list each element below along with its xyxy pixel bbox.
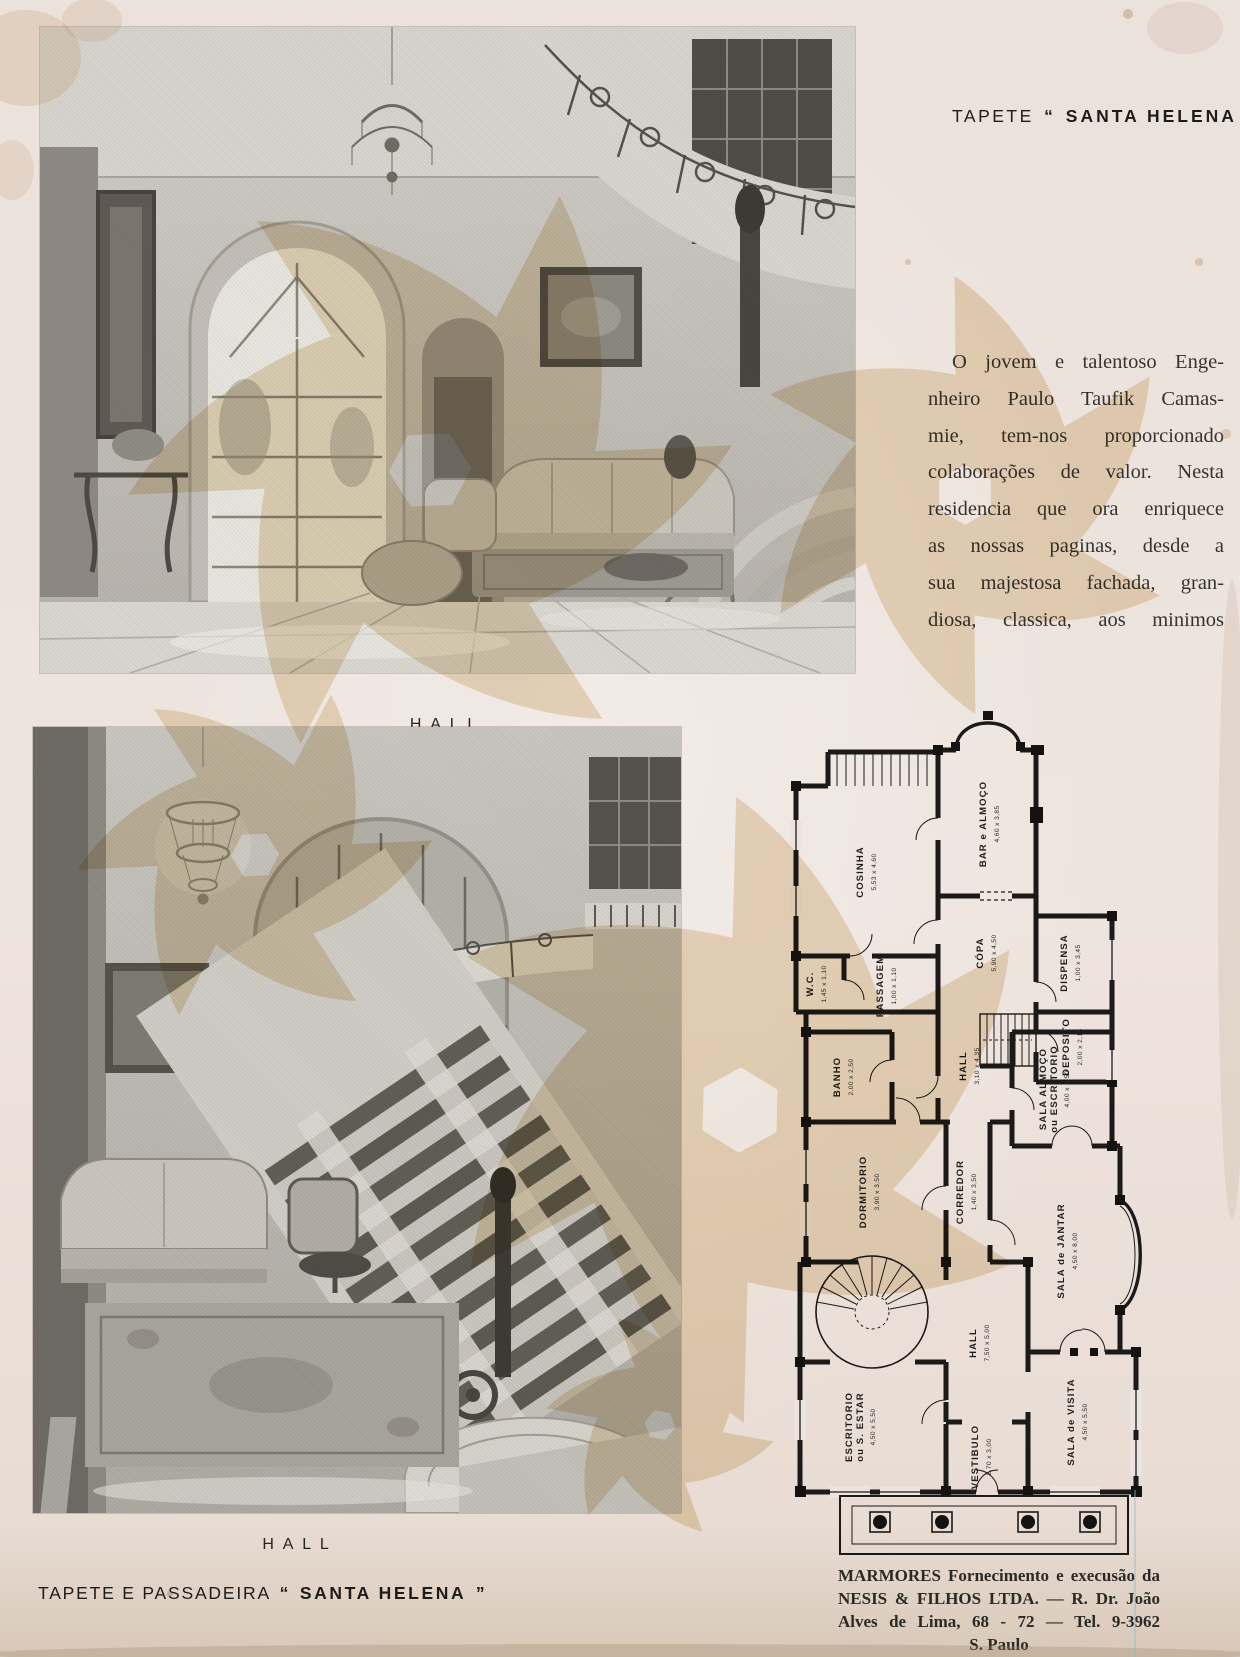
room-dimension: 2,70 x 3,00 (986, 1438, 993, 1475)
windows (790, 820, 1142, 1498)
room-label: HALL (968, 1328, 979, 1358)
brand-name: SANTA HELENA (1066, 106, 1237, 126)
room-label: BANHO (832, 1057, 843, 1097)
masthead-brand-line: TAPETE “ SANTA HELENA ” (952, 106, 1240, 127)
photo-hall-1-art (40, 27, 855, 673)
spiral-staircase (816, 1256, 928, 1368)
brand-name: SANTA HELENA (300, 1583, 466, 1603)
close-quote: ” (473, 1583, 490, 1603)
room-dimension: 7,50 x 5,00 (984, 1324, 991, 1361)
room-label: CORREDOR (955, 1160, 966, 1224)
article-line: diosa, classica, aos minimos (928, 602, 1224, 639)
terrace-columns (870, 1512, 1100, 1532)
credit-line: NESIS & FILHOS LTDA. — R. Dr. João (838, 1587, 1160, 1610)
credit-line: MARMORES Fornecimento e execusão da (838, 1564, 1160, 1587)
room-label: HALL (958, 1051, 969, 1081)
service-stair (837, 752, 927, 786)
article-line: as nossas paginas, desde a (928, 528, 1224, 565)
room-label: VESTIBULO (970, 1425, 981, 1489)
room-dimension: 1,45 x 1,10 (821, 965, 828, 1002)
room-label: ou S. ESTAR (855, 1392, 866, 1461)
floor-plan-drawing: COSINHA5,53 x 4,60BAR e ALMOÇO4,60 x 3,8… (680, 700, 1150, 1560)
room-label: ou ESCRITORIO (1049, 1045, 1060, 1133)
masthead-prefix: TAPETE (952, 106, 1034, 126)
photo2-caption: HALL (33, 1536, 567, 1554)
floor-plan: COSINHA5,53 x 4,60BAR e ALMOÇO4,60 x 3,8… (680, 700, 1150, 1565)
room-dimension: 4,50 x 5,50 (870, 1408, 877, 1445)
room-label: DISPENSA (1059, 934, 1070, 991)
room-label: W.C. (805, 972, 816, 997)
photo-hall-2 (33, 727, 681, 1513)
room-label: PASSAGEM (875, 955, 886, 1017)
room-label: BAR e ALMOÇO (978, 781, 989, 867)
photo-hall-2-art (33, 727, 681, 1513)
room-dimension: 1,00 x 1,10 (891, 967, 898, 1004)
room-dimension: 5,53 x 4,60 (871, 853, 878, 890)
mid-stair (980, 1014, 1036, 1066)
article-line: O jovem e talentoso Enge- (928, 344, 1224, 381)
room-dimension: 2,00 x 2,50 (848, 1058, 855, 1095)
room-dimension: 5,90 x 4,50 (991, 934, 998, 971)
article-line: colaborações de valor. Nesta (928, 454, 1224, 491)
marble-credit: MARMORES Fornecimento e execusão daNESIS… (838, 1564, 1160, 1656)
article-line: residencia que ora enriquece (928, 491, 1224, 528)
room-dimension: 2,00 x 2,15 (1077, 1028, 1084, 1065)
room-dimension: 4,50 x 5,50 (1082, 1403, 1089, 1440)
photo-hall-1 (40, 27, 855, 673)
room-dimension: 4,00 x 3,50 (1064, 1070, 1071, 1107)
open-quote: “ (277, 1583, 294, 1603)
room-dimension: 1,00 x 3,45 (1075, 944, 1082, 981)
room-label: SALA de JANTAR (1056, 1203, 1067, 1298)
magazine-page: HALL TAPETE “ SANTA HELENA ” O jovem e t… (0, 0, 1240, 1657)
room-label: DORMITORIO (858, 1156, 869, 1229)
room-dimension: 4,50 x 8,00 (1072, 1232, 1079, 1269)
room-label: DEPOSITO (1061, 1018, 1072, 1076)
room-label: SALA de VISITA (1066, 1378, 1077, 1465)
wall-pillars (791, 711, 1142, 1497)
footer-brand-line: TAPETE E PASSADEIRA “ SANTA HELENA ” (38, 1583, 489, 1604)
room-dimension: 3,90 x 3,50 (874, 1173, 881, 1210)
room-label: COSINHA (855, 846, 866, 898)
room-label: ESCRITORIO (844, 1392, 855, 1462)
room-label: SALA ALMOÇO (1038, 1048, 1049, 1130)
article-paragraph: O jovem e talentoso Enge-nheiro Paulo Ta… (928, 344, 1224, 638)
footer-prefix: TAPETE E PASSADEIRA (38, 1583, 270, 1603)
article-line: mie, tem-nos proporcionado (928, 418, 1224, 455)
room-dimension: 4,60 x 3,85 (994, 805, 1001, 842)
credit-line: Alves de Lima, 68 - 72 — Tel. 9-3962 (838, 1610, 1160, 1633)
open-quote: “ (1041, 106, 1058, 126)
article-line: sua majestosa fachada, gran- (928, 565, 1224, 602)
room-dimension: 3,10 x 4,35 (974, 1047, 981, 1084)
credit-line: S. Paulo (838, 1633, 1160, 1656)
room-dimension: 1,40 x 3,50 (971, 1173, 978, 1210)
room-label: CÓPA (974, 937, 986, 968)
terrace (840, 1496, 1128, 1554)
article-line: nheiro Paulo Taufik Camas- (928, 381, 1224, 418)
